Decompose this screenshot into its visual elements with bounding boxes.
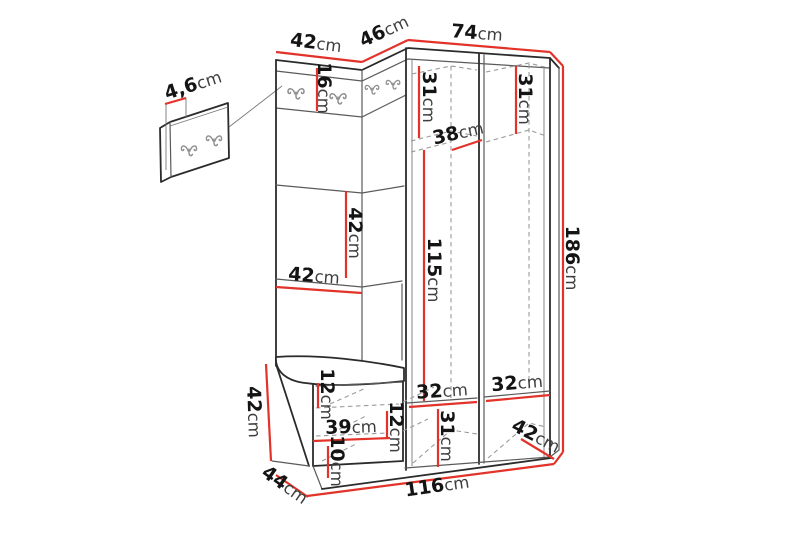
svg-text:10cm: 10cm <box>326 435 348 487</box>
dimension-middle-compartment-width: 42cm <box>276 263 362 293</box>
bench-cushion <box>276 356 404 385</box>
svg-text:46cm: 46cm <box>356 10 412 52</box>
furniture-line-drawing: 42cm 46cm 74cm 4,6cm 16cm 31cm 31cm 38cm… <box>0 0 800 533</box>
dimension-top-width-74: 74cm <box>408 20 563 66</box>
dimension-upper-compartment-right: 31cm <box>514 66 536 134</box>
coat-hook-icon <box>386 80 400 89</box>
svg-text:4,6cm: 4,6cm <box>162 65 225 104</box>
dimension-bench-depth: 44cm <box>258 461 313 509</box>
svg-text:44cm: 44cm <box>258 461 313 509</box>
callout-line <box>229 86 282 127</box>
svg-text:116cm: 116cm <box>403 471 470 502</box>
dimension-bottom-compartment-height: 31cm <box>436 409 458 467</box>
dimension-total-height: 186cm <box>554 66 583 464</box>
dimension-wardrobe-depth: 42cm <box>508 414 564 459</box>
dimension-bench-top-section: 12cm <box>316 368 338 420</box>
dimension-bench-inner-width: 39cm <box>313 415 390 441</box>
coat-hook-icon <box>288 89 304 99</box>
svg-text:42cm: 42cm <box>287 263 340 289</box>
dimension-top-width-42: 42cm <box>276 29 362 62</box>
dimension-plinth-height: 10cm <box>326 435 348 487</box>
svg-text:42cm: 42cm <box>508 414 564 457</box>
svg-text:115cm: 115cm <box>423 238 445 303</box>
dimension-hanging-height: 115cm <box>423 150 445 401</box>
svg-text:12cm: 12cm <box>385 401 407 453</box>
svg-text:31cm: 31cm <box>436 410 458 462</box>
svg-text:32cm: 32cm <box>415 378 468 404</box>
svg-text:74cm: 74cm <box>450 20 503 46</box>
svg-text:16cm: 16cm <box>313 62 335 114</box>
dimension-panel-thickness: 4,6cm <box>162 65 225 104</box>
svg-text:42cm: 42cm <box>289 29 343 57</box>
dimension-hook-strip-height: 16cm <box>313 62 335 114</box>
dimension-diagram: 42cm 46cm 74cm 4,6cm 16cm 31cm 31cm 38cm… <box>0 0 800 533</box>
svg-text:42cm: 42cm <box>344 207 366 259</box>
svg-text:12cm: 12cm <box>316 368 338 420</box>
svg-text:186cm: 186cm <box>561 226 583 291</box>
dimension-middle-compartment-height: 42cm <box>344 191 366 278</box>
coat-hook-icon <box>365 85 379 94</box>
svg-text:31cm: 31cm <box>418 71 440 123</box>
svg-text:31cm: 31cm <box>514 73 536 125</box>
dimension-top-width-46: 46cm <box>356 10 412 62</box>
dimension-bench-height: 42cm <box>242 364 271 461</box>
dimension-bench-right-section: 12cm <box>385 401 407 453</box>
svg-text:42cm: 42cm <box>242 386 266 438</box>
dimension-bottom-compartment-width-left: 32cm <box>409 378 477 407</box>
